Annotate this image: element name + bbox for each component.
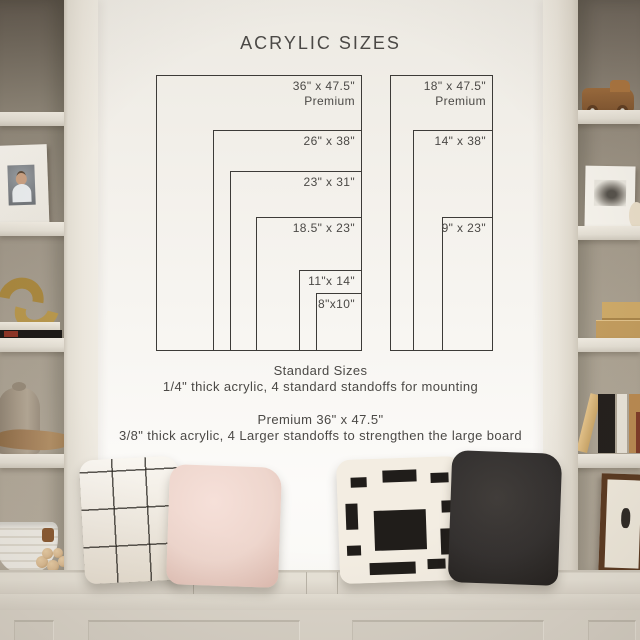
book-label [4, 331, 18, 337]
wooden-box-bottom [596, 320, 640, 339]
framed-figure-sketch [621, 508, 631, 528]
standard-sizes-heading: Standard Sizes [98, 363, 543, 379]
shelf-board [0, 454, 70, 468]
toy-car-cab [610, 80, 630, 92]
bench-front-edge [0, 594, 640, 610]
sketch-art-frame [584, 166, 635, 229]
cabinet-panel [352, 620, 544, 640]
leaning-wood-frame [598, 473, 640, 575]
white-book [617, 394, 627, 453]
wooden-box-top [602, 302, 640, 320]
vase-lid-knob [12, 382, 26, 391]
child-photo-frame [0, 144, 49, 224]
charcoal-pillow [448, 450, 563, 586]
wooden-toy-car [582, 88, 634, 112]
sketch-art [594, 180, 626, 207]
premium-size-description: 3/8" thick acrylic, 4 Larger standoffs t… [98, 428, 543, 444]
shelf-board [570, 338, 640, 352]
blush-velvet-pillow [166, 464, 282, 588]
wood-bead [42, 548, 53, 559]
portrait-shirt [12, 184, 32, 203]
black-book [598, 394, 615, 453]
basket-leather-handle [42, 528, 54, 542]
bench-seam [337, 572, 338, 594]
cabinet-panel [88, 620, 300, 640]
cabinet-base [0, 610, 640, 640]
premium-size-heading: Premium 36" x 47.5" [98, 412, 543, 428]
black-book-spine [0, 330, 62, 338]
red-book [636, 412, 640, 453]
page-title: ACRYLIC SIZES [98, 33, 543, 54]
wood-bead [53, 548, 63, 558]
size-notes: Standard Sizes 1/4" thick acrylic, 4 sta… [98, 363, 543, 444]
white-book-spine [0, 322, 60, 330]
cabinet-panel [588, 620, 636, 640]
shelf-board [570, 110, 640, 124]
shelf-board [0, 338, 70, 352]
mudcloth-pattern-pillow [336, 456, 466, 584]
shelf-board [570, 454, 640, 468]
cabinet-panel [14, 620, 54, 640]
bench-seam [306, 572, 307, 594]
brass-sculpture [0, 272, 60, 324]
child-portrait-photo [7, 165, 35, 206]
shelf-board [570, 226, 640, 240]
shelf-board [0, 112, 70, 126]
scene: ACRYLIC SIZES 36" x 47.5"Premium26" x 38… [0, 0, 640, 640]
shelf-board [0, 222, 70, 236]
standard-sizes-description: 1/4" thick acrylic, 4 standard standoffs… [98, 379, 543, 395]
gourd-decor [629, 202, 640, 228]
